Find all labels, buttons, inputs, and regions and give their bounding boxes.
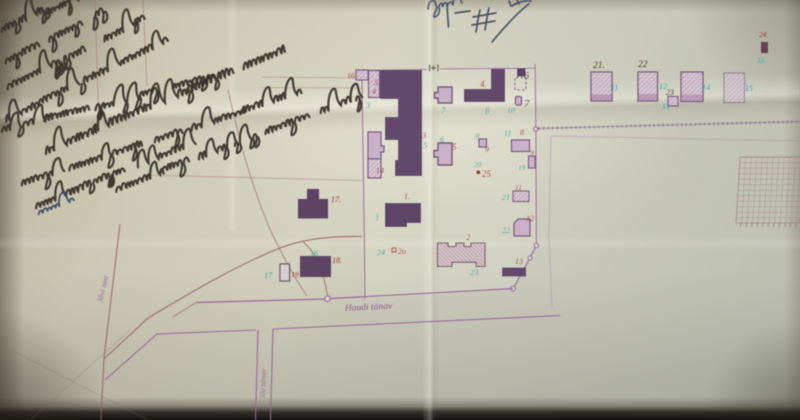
svg-text:14: 14 xyxy=(702,83,710,92)
svg-text:21: 21 xyxy=(502,193,510,202)
svg-text:8: 8 xyxy=(485,106,490,116)
svg-text:24: 24 xyxy=(377,248,385,257)
svg-text:13: 13 xyxy=(515,257,523,266)
svg-text:7: 7 xyxy=(524,98,530,110)
svg-text:11: 11 xyxy=(504,129,511,138)
svg-text:2o: 2o xyxy=(398,247,406,256)
svg-text:13: 13 xyxy=(662,102,670,111)
svg-text:16: 16 xyxy=(757,56,765,65)
svg-text:24: 24 xyxy=(759,30,767,39)
svg-text:12: 12 xyxy=(526,214,534,223)
svg-text:3: 3 xyxy=(421,130,426,140)
svg-text:18.: 18. xyxy=(332,256,342,265)
svg-text:5: 5 xyxy=(452,142,457,152)
svg-text:23: 23 xyxy=(470,267,479,277)
svg-text:14: 14 xyxy=(376,166,384,175)
svg-text:5: 5 xyxy=(423,140,427,150)
svg-text:15: 15 xyxy=(745,84,753,93)
svg-text:Jõe tänav: Jõe tänav xyxy=(258,368,268,399)
svg-text:9: 9 xyxy=(530,148,534,157)
svg-text:19: 19 xyxy=(292,271,300,279)
svg-text:8: 8 xyxy=(520,128,524,137)
svg-text:Haudi tänav: Haudi tänav xyxy=(344,301,393,314)
svg-text:19: 19 xyxy=(518,163,526,172)
svg-text:1: 1 xyxy=(375,212,379,222)
svg-text:22: 22 xyxy=(502,226,510,235)
svg-text:3: 3 xyxy=(365,100,370,110)
svg-text:20: 20 xyxy=(474,160,482,169)
svg-text:16: 16 xyxy=(310,249,318,258)
svg-text:4: 4 xyxy=(372,87,376,96)
svg-text:9: 9 xyxy=(485,145,489,154)
svg-text:11: 11 xyxy=(515,183,522,192)
svg-text:6: 6 xyxy=(440,135,444,144)
svg-text:17.: 17. xyxy=(331,195,341,204)
svg-text:23: 23 xyxy=(666,88,674,97)
svg-text:21.: 21. xyxy=(593,61,605,71)
svg-text:7: 7 xyxy=(441,106,446,116)
svg-text:11: 11 xyxy=(611,83,618,92)
svg-text:16: 16 xyxy=(347,71,355,80)
svg-text:6: 6 xyxy=(524,71,529,82)
svg-text:5: 5 xyxy=(374,78,378,87)
svg-text:12: 12 xyxy=(659,82,667,91)
svg-text:1.: 1. xyxy=(404,192,410,201)
svg-text:4.: 4. xyxy=(480,79,487,89)
svg-text:22: 22 xyxy=(638,60,648,70)
svg-text:10: 10 xyxy=(507,106,515,115)
svg-text:17: 17 xyxy=(264,271,273,280)
svg-text:Jõvi mnt: Jõvi mnt xyxy=(95,274,111,303)
svg-text:25: 25 xyxy=(482,169,492,179)
